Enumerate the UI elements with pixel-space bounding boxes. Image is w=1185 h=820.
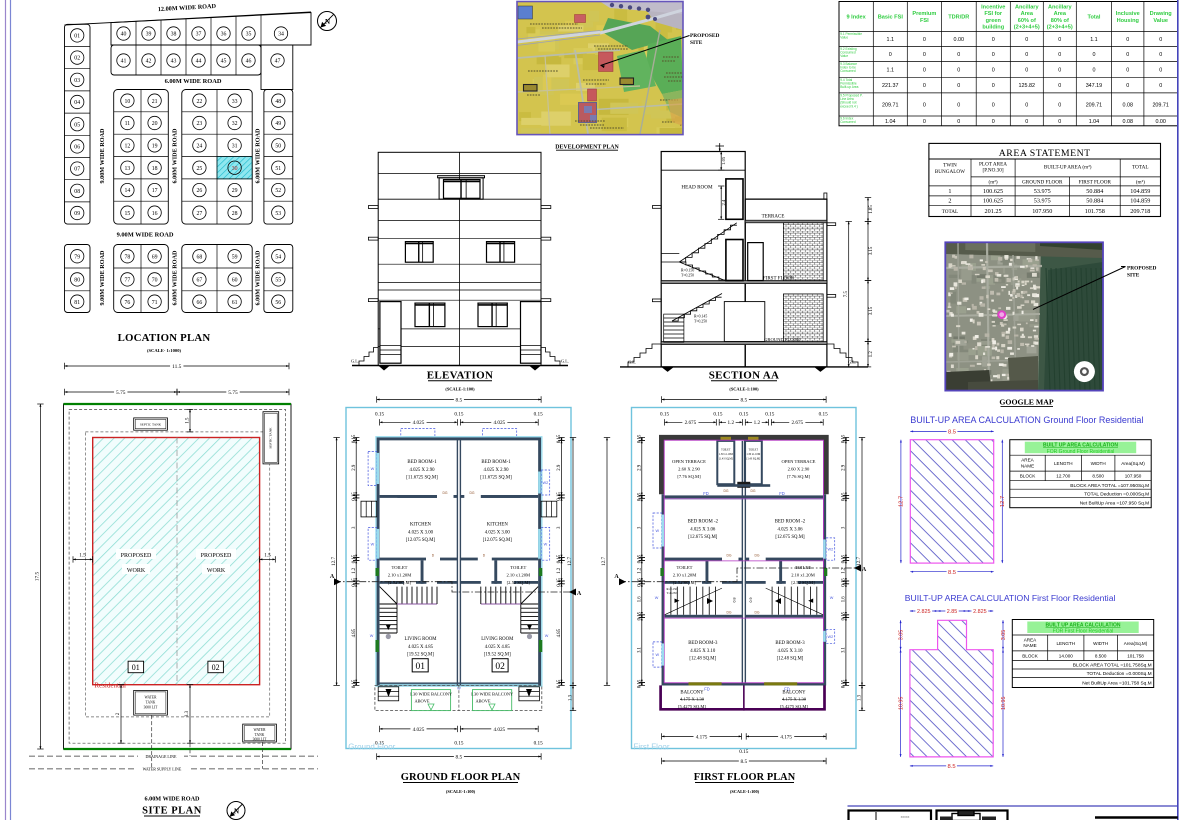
svg-text:GROUND FLOOR: GROUND FLOOR (764, 337, 801, 342)
svg-text:0: 0 (1159, 67, 1162, 73)
svg-text:1.30 x1.10M: 1.30 x1.10M (746, 453, 760, 456)
svg-text:AREA STATEMENT: AREA STATEMENT (999, 148, 1091, 159)
svg-text:0: 0 (1126, 83, 1129, 89)
svg-text:209.71: 209.71 (1086, 102, 1103, 108)
svg-text:0: 0 (992, 37, 995, 43)
svg-text:N: N (325, 18, 330, 26)
svg-text:9.00M WIDE ROAD: 9.00M WIDE ROAD (117, 232, 174, 239)
svg-text:0.15: 0.15 (534, 741, 543, 747)
svg-text:TOILET: TOILET (721, 449, 731, 452)
svg-text:exceed 9.4 ): exceed 9.4 ) (840, 104, 858, 108)
svg-text:4.175 X 1.30: 4.175 X 1.30 (680, 697, 705, 702)
svg-text:2.675: 2.675 (791, 420, 803, 426)
svg-text:A: A (330, 574, 335, 580)
svg-text:81: 81 (74, 300, 80, 306)
svg-text:0: 0 (957, 83, 960, 89)
svg-text:BED ROOM -2: BED ROOM -2 (775, 520, 806, 525)
svg-text:1.3: 1.3 (568, 694, 573, 701)
svg-text:0: 0 (992, 52, 995, 58)
svg-text:0: 0 (1126, 67, 1129, 73)
svg-text:0: 0 (992, 119, 995, 125)
svg-text:22: 22 (197, 99, 203, 105)
svg-text:2.675: 2.675 (685, 420, 697, 426)
svg-text:FD: FD (704, 687, 710, 692)
svg-text:[11.6725 SQ.M]: [11.6725 SQ.M] (480, 476, 512, 481)
svg-text:18: 18 (152, 166, 158, 172)
svg-text:[19.52 SQ.M]: [19.52 SQ.M] (407, 653, 434, 658)
svg-text:0.15: 0.15 (454, 411, 463, 417)
svg-text:4.175: 4.175 (696, 734, 708, 740)
svg-text:0.15: 0.15 (660, 411, 669, 417)
svg-text:2.4: 2.4 (721, 199, 726, 205)
svg-text:0: 0 (1025, 102, 1028, 108)
svg-text:TWIN: TWIN (943, 163, 957, 169)
svg-text:0: 0 (1058, 119, 1061, 125)
svg-text:NAME: NAME (1023, 643, 1036, 648)
svg-text:8.500: 8.500 (1092, 474, 1104, 479)
svg-text:0.00: 0.00 (1155, 119, 1166, 125)
svg-text:G.L.: G.L. (561, 359, 569, 364)
svg-text:1.1: 1.1 (887, 67, 895, 73)
svg-text:(SCALE-1:100): (SCALE-1:100) (729, 387, 759, 392)
svg-text:AREA: AREA (1024, 637, 1037, 642)
svg-text:221.37: 221.37 (882, 83, 899, 89)
svg-text:BED ROOM-3: BED ROOM-3 (688, 641, 718, 646)
svg-text:4.025 X 2.90: 4.025 X 2.90 (483, 468, 509, 473)
svg-text:0: 0 (923, 119, 926, 125)
svg-text:19: 19 (152, 143, 158, 149)
svg-text:BED ROOM-1: BED ROOM-1 (481, 460, 511, 465)
svg-text:8.5: 8.5 (948, 764, 956, 770)
svg-text:ABOVE: ABOVE (475, 699, 490, 704)
svg-text:46: 46 (246, 59, 252, 65)
svg-text:4.025 X 4.85: 4.025 X 4.85 (485, 645, 511, 650)
svg-text:30: 30 (232, 166, 238, 172)
svg-text:0: 0 (992, 67, 995, 73)
svg-text:79: 79 (74, 254, 80, 260)
svg-text:0: 0 (923, 67, 926, 73)
svg-text:BALCONY: BALCONY (782, 691, 806, 696)
svg-text:1.5: 1.5 (185, 417, 190, 424)
svg-text:2.10 x1.20M: 2.10 x1.20M (791, 572, 815, 577)
svg-text:80: 80 (74, 278, 80, 284)
svg-text:Ancillary: Ancillary (1015, 4, 1040, 10)
svg-text:G.L.: G.L. (848, 360, 856, 365)
svg-text:HEAD ROOM: HEAD ROOM (681, 185, 713, 191)
svg-text:KITCHEN: KITCHEN (410, 523, 432, 528)
svg-text:1.6: 1.6 (637, 596, 642, 603)
svg-text:71: 71 (152, 300, 158, 306)
svg-text:ABOVE: ABOVE (414, 699, 429, 704)
svg-text:7.5: 7.5 (844, 291, 849, 298)
svg-text:44: 44 (196, 59, 202, 65)
svg-text:11.5: 11.5 (172, 364, 182, 370)
svg-text:BED ROOM -2: BED ROOM -2 (688, 520, 719, 525)
svg-text:Ancillary: Ancillary (1048, 4, 1073, 10)
svg-text:4.025: 4.025 (493, 727, 505, 733)
svg-text:Area: Area (1054, 11, 1067, 17)
svg-text:[12.675 SQ.M]: [12.675 SQ.M] (688, 535, 718, 540)
svg-text:8.5: 8.5 (948, 429, 956, 435)
svg-text:0: 0 (923, 83, 926, 89)
svg-text:0: 0 (1159, 37, 1162, 43)
svg-text:[5.4275 SQ.M]: [5.4275 SQ.M] (678, 704, 706, 709)
svg-text:11: 11 (125, 121, 131, 127)
svg-text:2.10 x1.20M: 2.10 x1.20M (388, 572, 412, 577)
svg-text:WIDTH: WIDTH (1091, 461, 1106, 466)
svg-text:47: 47 (275, 59, 281, 65)
svg-text:[2.52 SQ.M]: [2.52 SQ.M] (673, 580, 697, 585)
svg-text:0.15: 0.15 (713, 411, 722, 417)
svg-text:WATER: WATER (145, 696, 158, 700)
svg-text:WORK: WORK (127, 568, 146, 574)
svg-text:209.718: 209.718 (1130, 208, 1150, 215)
svg-text:60: 60 (232, 278, 238, 284)
svg-text:201.25: 201.25 (985, 208, 1002, 215)
svg-text:WATER SUPPLY LINE: WATER SUPPLY LINE (143, 767, 182, 772)
svg-text:NAME: NAME (1021, 463, 1034, 468)
svg-text:1.05: 1.05 (869, 205, 874, 214)
svg-text:W: W (656, 529, 660, 533)
svg-text:Value: Value (1153, 18, 1168, 24)
svg-text:0.15: 0.15 (534, 411, 543, 417)
svg-text:2.10 x1.20M: 2.10 x1.20M (673, 572, 697, 577)
svg-text:BLOCK AREA TOTAL =101.758Sq.M: BLOCK AREA TOTAL =101.758Sq.M (1073, 663, 1152, 669)
svg-text:SEPTIC TANK: SEPTIC TANK (140, 423, 162, 427)
svg-text:1.30 WIDE BALCONY: 1.30 WIDE BALCONY (410, 692, 453, 697)
svg-text:0: 0 (1025, 119, 1028, 125)
svg-text:N: N (234, 807, 239, 815)
svg-text:0: 0 (923, 102, 926, 108)
svg-text:0: 0 (992, 102, 995, 108)
svg-text:2.60 X 2.90: 2.60 X 2.90 (678, 467, 700, 472)
svg-text:FIRST FLOOR: FIRST FLOOR (1079, 180, 1112, 186)
svg-text:6.00M WIDE ROAD: 6.00M WIDE ROAD (144, 796, 200, 803)
svg-text:A: A (614, 574, 619, 580)
svg-text:TERRACE: TERRACE (762, 215, 785, 220)
svg-text:1.2: 1.2 (637, 567, 642, 574)
svg-text:TOILET: TOILET (510, 565, 526, 570)
svg-text:3000 LIT: 3000 LIT (144, 706, 158, 710)
svg-text:[2.52 SQ.M]: [2.52 SQ.M] (388, 580, 412, 585)
svg-text:T=0.250: T=0.250 (681, 274, 694, 278)
svg-text:80% of: 80% of (1051, 18, 1069, 24)
svg-text:1.5: 1.5 (79, 553, 86, 559)
svg-text:FIRST FLOOR PLAN: FIRST FLOOR PLAN (694, 772, 796, 783)
svg-text:GROUND FLOOR PLAN: GROUND FLOOR PLAN (401, 772, 521, 783)
svg-text:05: 05 (74, 122, 80, 128)
svg-text:4.025 X 2.90: 4.025 X 2.90 (409, 468, 435, 473)
svg-text:0: 0 (1058, 52, 1061, 58)
svg-text:2.9: 2.9 (637, 464, 642, 471)
svg-text:6.00M WIDE ROAD: 6.00M WIDE ROAD (172, 250, 179, 306)
svg-text:37: 37 (196, 32, 202, 38)
svg-text:04: 04 (74, 100, 80, 106)
svg-text:[2.52 SQ.M]: [2.52 SQ.M] (507, 580, 531, 585)
svg-text:3.15: 3.15 (869, 246, 874, 255)
svg-text:FOR Ground Floor Residential: FOR Ground Floor Residential (1047, 449, 1115, 455)
svg-text:BED ROOM-1: BED ROOM-1 (407, 460, 437, 465)
svg-text:29: 29 (232, 188, 238, 194)
svg-text:2.825: 2.825 (973, 609, 987, 615)
svg-text:0.15: 0.15 (765, 411, 774, 417)
svg-text:8.5: 8.5 (740, 759, 747, 765)
svg-text:12.7: 12.7 (331, 557, 337, 566)
svg-text:1.04: 1.04 (885, 119, 896, 125)
svg-text:W2: W2 (828, 635, 834, 639)
svg-text:0: 0 (889, 52, 892, 58)
svg-text:R=0.150: R=0.150 (681, 269, 694, 273)
svg-text:DG: DG (754, 611, 759, 615)
svg-text:SITE: SITE (690, 40, 703, 46)
svg-text:2.10 x1.20M: 2.10 x1.20M (506, 572, 530, 577)
svg-text:06: 06 (74, 145, 80, 151)
svg-text:1.5: 1.5 (264, 553, 271, 559)
svg-text:2.60 X 2.90: 2.60 X 2.90 (788, 467, 810, 472)
svg-text:53: 53 (275, 211, 281, 217)
svg-text:12.700: 12.700 (1056, 474, 1070, 479)
svg-text:1.6: 1.6 (842, 596, 847, 603)
svg-text:12.7: 12.7 (567, 557, 573, 566)
svg-text:1.05: 1.05 (721, 156, 726, 165)
svg-text:Premium: Premium (912, 11, 936, 17)
svg-text:[12.075 SQ.M]: [12.075 SQ.M] (483, 538, 513, 543)
svg-text:[12.48 SQ.M]: [12.48 SQ.M] (689, 657, 716, 662)
svg-text:52: 52 (275, 188, 281, 194)
svg-text:61: 61 (232, 300, 238, 306)
svg-text:First Floor: First Floor (634, 743, 670, 752)
svg-text:[P.NO.30]: [P.NO.30] (983, 167, 1004, 173)
svg-text:0: 0 (1058, 67, 1061, 73)
svg-text:01: 01 (74, 34, 80, 40)
svg-text:28: 28 (232, 211, 238, 217)
svg-text:10.95: 10.95 (898, 697, 904, 711)
svg-text:50.884: 50.884 (1086, 188, 1103, 195)
svg-text:53.975: 53.975 (1034, 198, 1051, 205)
svg-text:4.025 X 3.00: 4.025 X 3.00 (408, 530, 434, 535)
svg-text:DG: DG (726, 611, 731, 615)
svg-text:W2: W2 (828, 548, 834, 552)
svg-text:4.025 X 3.06: 4.025 X 3.06 (690, 527, 716, 532)
svg-text:0: 0 (1159, 52, 1162, 58)
svg-text:17: 17 (152, 188, 158, 194)
svg-text:1.30 x1.10M: 1.30 x1.10M (719, 453, 733, 456)
svg-text:W: W (370, 634, 374, 638)
svg-text:0: 0 (957, 119, 960, 125)
svg-text:0: 0 (957, 102, 960, 108)
svg-text:100.625: 100.625 (983, 188, 1003, 195)
svg-text:LENGTH: LENGTH (1056, 641, 1075, 646)
svg-text:BUILT-UP AREA CALCULATION Grou: BUILT-UP AREA CALCULATION Ground Floor R… (910, 415, 1143, 425)
svg-text:OPEN TERRACE: OPEN TERRACE (782, 459, 816, 464)
svg-text:BLOCK AREA TOTAL =107.950Sq.M: BLOCK AREA TOTAL =107.950Sq.M (1070, 483, 1149, 489)
svg-text:T=0.250: T=0.250 (667, 591, 678, 595)
svg-text:6.00M WIDE ROAD: 6.00M WIDE ROAD (255, 128, 262, 184)
svg-text:FSI: FSI (920, 18, 929, 24)
svg-text:Drawing: Drawing (1150, 11, 1173, 17)
svg-text:TOILET: TOILET (392, 565, 408, 570)
svg-text:Area(Sq.M): Area(Sq.M) (1124, 641, 1148, 646)
svg-text:BLOCK: BLOCK (1020, 474, 1037, 479)
svg-text:1.2: 1.2 (557, 567, 562, 574)
svg-text:15: 15 (125, 211, 131, 217)
svg-text:50: 50 (275, 143, 281, 149)
svg-text:12.7: 12.7 (601, 557, 607, 566)
svg-text:100.625: 100.625 (983, 198, 1003, 205)
svg-text:12.7: 12.7 (1000, 496, 1006, 507)
svg-text:48: 48 (275, 99, 281, 105)
svg-text:0: 0 (1092, 67, 1095, 73)
svg-text:DG: DG (469, 491, 474, 495)
svg-text:6.00M WIDE ROAD: 6.00M WIDE ROAD (255, 250, 262, 306)
svg-text:BUILT UP AREA CALCULATION: BUILT UP AREA CALCULATION (1043, 443, 1118, 449)
svg-text:101.758: 101.758 (1085, 208, 1105, 215)
svg-text:green: green (986, 18, 1002, 24)
svg-text:TOTAL: TOTAL (942, 209, 959, 215)
svg-text:03: 03 (74, 78, 80, 84)
svg-text:50.884: 50.884 (1086, 198, 1103, 205)
svg-text:3.1: 3.1 (637, 646, 642, 653)
svg-text:0.15: 0.15 (375, 411, 384, 417)
svg-text:4.025: 4.025 (493, 420, 505, 426)
svg-text:Area(Sq.M): Area(Sq.M) (1121, 461, 1145, 466)
svg-text:5.75: 5.75 (228, 390, 238, 396)
svg-text:(m²): (m²) (1136, 179, 1145, 186)
svg-text:DG: DG (442, 491, 447, 495)
svg-text:SEPTIC TANK: SEPTIC TANK (269, 427, 273, 449)
svg-text:W: W (371, 467, 375, 471)
svg-text:T=0.250: T=0.250 (694, 320, 707, 324)
svg-text:FIRST FLOOR: FIRST FLOOR (763, 277, 795, 282)
svg-text:0.08: 0.08 (1123, 102, 1134, 108)
svg-text:40: 40 (121, 32, 127, 38)
svg-text:(m²): (m²) (989, 179, 998, 186)
svg-text:Built-up Area: Built-up Area (840, 85, 858, 89)
svg-text:77: 77 (125, 278, 131, 284)
svg-text:OPEN TERRACE: OPEN TERRACE (672, 459, 706, 464)
svg-text:0.8: 0.8 (733, 598, 737, 603)
svg-text:TOILET: TOILET (749, 449, 759, 452)
svg-text:02: 02 (74, 56, 80, 62)
svg-text:0: 0 (957, 67, 960, 73)
svg-text:W2: W2 (543, 481, 549, 485)
svg-text:01: 01 (415, 662, 425, 672)
svg-text:TOILET: TOILET (677, 565, 693, 570)
svg-text:8.500: 8.500 (1095, 654, 1107, 659)
svg-text:0.15: 0.15 (637, 679, 642, 688)
svg-text:0.15: 0.15 (739, 749, 748, 755)
svg-text:PROPOSED: PROPOSED (690, 33, 719, 39)
svg-text:20: 20 (152, 121, 158, 127)
svg-text:1.3: 1.3 (857, 694, 862, 701)
svg-text:10.95: 10.95 (1001, 697, 1007, 711)
svg-text:0: 0 (957, 52, 960, 58)
svg-text:xxxxx: xxxxx (901, 815, 910, 819)
svg-text:BUNGALOW: BUNGALOW (935, 169, 965, 175)
svg-text:125.82: 125.82 (1019, 83, 1036, 89)
svg-text:14: 14 (125, 188, 131, 194)
svg-text:Ground Floor: Ground Floor (348, 743, 395, 752)
svg-text:Inclusive: Inclusive (1116, 11, 1140, 17)
svg-text:TOTAL: TOTAL (1132, 165, 1149, 171)
svg-text:TDR/DR: TDR/DR (948, 15, 969, 21)
svg-text:78: 78 (125, 254, 131, 260)
svg-text:3.05: 3.05 (1001, 630, 1007, 641)
svg-text:45: 45 (221, 59, 227, 65)
svg-text:3.1: 3.1 (842, 646, 847, 653)
svg-text:1.30 WIDE BALCONY: 1.30 WIDE BALCONY (471, 692, 514, 697)
svg-text:DG: DG (750, 489, 755, 493)
svg-text:BUILT-UP AREA (m²): BUILT-UP AREA (m²) (1044, 164, 1092, 171)
svg-text:0: 0 (1058, 83, 1061, 89)
svg-text:BUILT UP AREA CALCULATION: BUILT UP AREA CALCULATION (1046, 622, 1121, 628)
svg-text:Consumed: Consumed (840, 69, 856, 73)
svg-text:01: 01 (132, 663, 140, 672)
svg-text:Total: Total (1087, 15, 1100, 21)
svg-text:Housing: Housing (1117, 18, 1140, 24)
svg-text:59: 59 (232, 254, 238, 260)
svg-text:0.15: 0.15 (819, 411, 828, 417)
svg-text:0: 0 (923, 52, 926, 58)
svg-text:A: A (577, 591, 582, 597)
svg-text:PROPOSED: PROPOSED (1127, 266, 1156, 272)
svg-text:TANK: TANK (146, 701, 156, 705)
svg-text:LENGTH: LENGTH (1054, 461, 1073, 466)
svg-text:TOTAL Deduction =0.000Sq.M: TOTAL Deduction =0.000Sq.M (1087, 671, 1152, 677)
svg-text:6.00M WIDE ROAD: 6.00M WIDE ROAD (165, 78, 222, 85)
svg-text:38: 38 (171, 32, 177, 38)
svg-text:2.9: 2.9 (557, 464, 562, 471)
svg-text:Basic FSI: Basic FSI (878, 15, 904, 21)
svg-text:12.7: 12.7 (856, 557, 862, 566)
svg-text:WORK: WORK (207, 568, 226, 574)
svg-text:(2+3+4+5): (2+3+4+5) (1047, 25, 1073, 31)
svg-text:KITCHEN: KITCHEN (487, 523, 509, 528)
svg-text:0: 0 (1025, 67, 1028, 73)
svg-text:34: 34 (278, 32, 284, 38)
svg-text:BUILT-UP AREA CALCULATION Firs: BUILT-UP AREA CALCULATION First Floor Re… (905, 593, 1116, 603)
svg-text:Value: Value (840, 36, 848, 40)
svg-text:9 Index: 9 Index (847, 15, 867, 21)
svg-text:8.5: 8.5 (456, 754, 463, 760)
svg-text:8.5: 8.5 (456, 397, 463, 403)
svg-text:43: 43 (171, 59, 177, 65)
svg-text:DG: DG (754, 553, 759, 557)
svg-text:FD: FD (703, 491, 709, 496)
svg-text:0: 0 (1058, 37, 1061, 43)
svg-text:1.1: 1.1 (887, 37, 895, 43)
svg-text:0: 0 (1025, 37, 1028, 43)
svg-text:BED ROOM-3: BED ROOM-3 (775, 641, 805, 646)
svg-text:TANK: TANK (255, 733, 265, 737)
svg-text:42: 42 (146, 59, 152, 65)
svg-text:[12.075 SQ.M]: [12.075 SQ.M] (406, 538, 436, 543)
svg-text:Area: Area (1021, 11, 1034, 17)
svg-text:[7.76 SQ.M]: [7.76 SQ.M] (677, 474, 701, 479)
svg-text:1.2: 1.2 (352, 567, 357, 574)
svg-text:1.2: 1.2 (754, 420, 761, 426)
svg-text:LIVING ROOM: LIVING ROOM (481, 637, 514, 642)
svg-text:60% of: 60% of (1018, 18, 1036, 24)
svg-text:51: 51 (275, 166, 281, 172)
svg-text:9.00M WIDE ROAD: 9.00M WIDE ROAD (99, 128, 106, 184)
svg-text:53.975: 53.975 (1034, 188, 1051, 195)
svg-text:W: W (656, 653, 660, 657)
svg-text:14.000: 14.000 (1059, 654, 1073, 659)
svg-text:FSI for: FSI for (984, 11, 1003, 17)
svg-text:LIVING ROOM: LIVING ROOM (404, 637, 437, 642)
svg-text:(SCALE-1:100): (SCALE-1:100) (730, 789, 760, 794)
